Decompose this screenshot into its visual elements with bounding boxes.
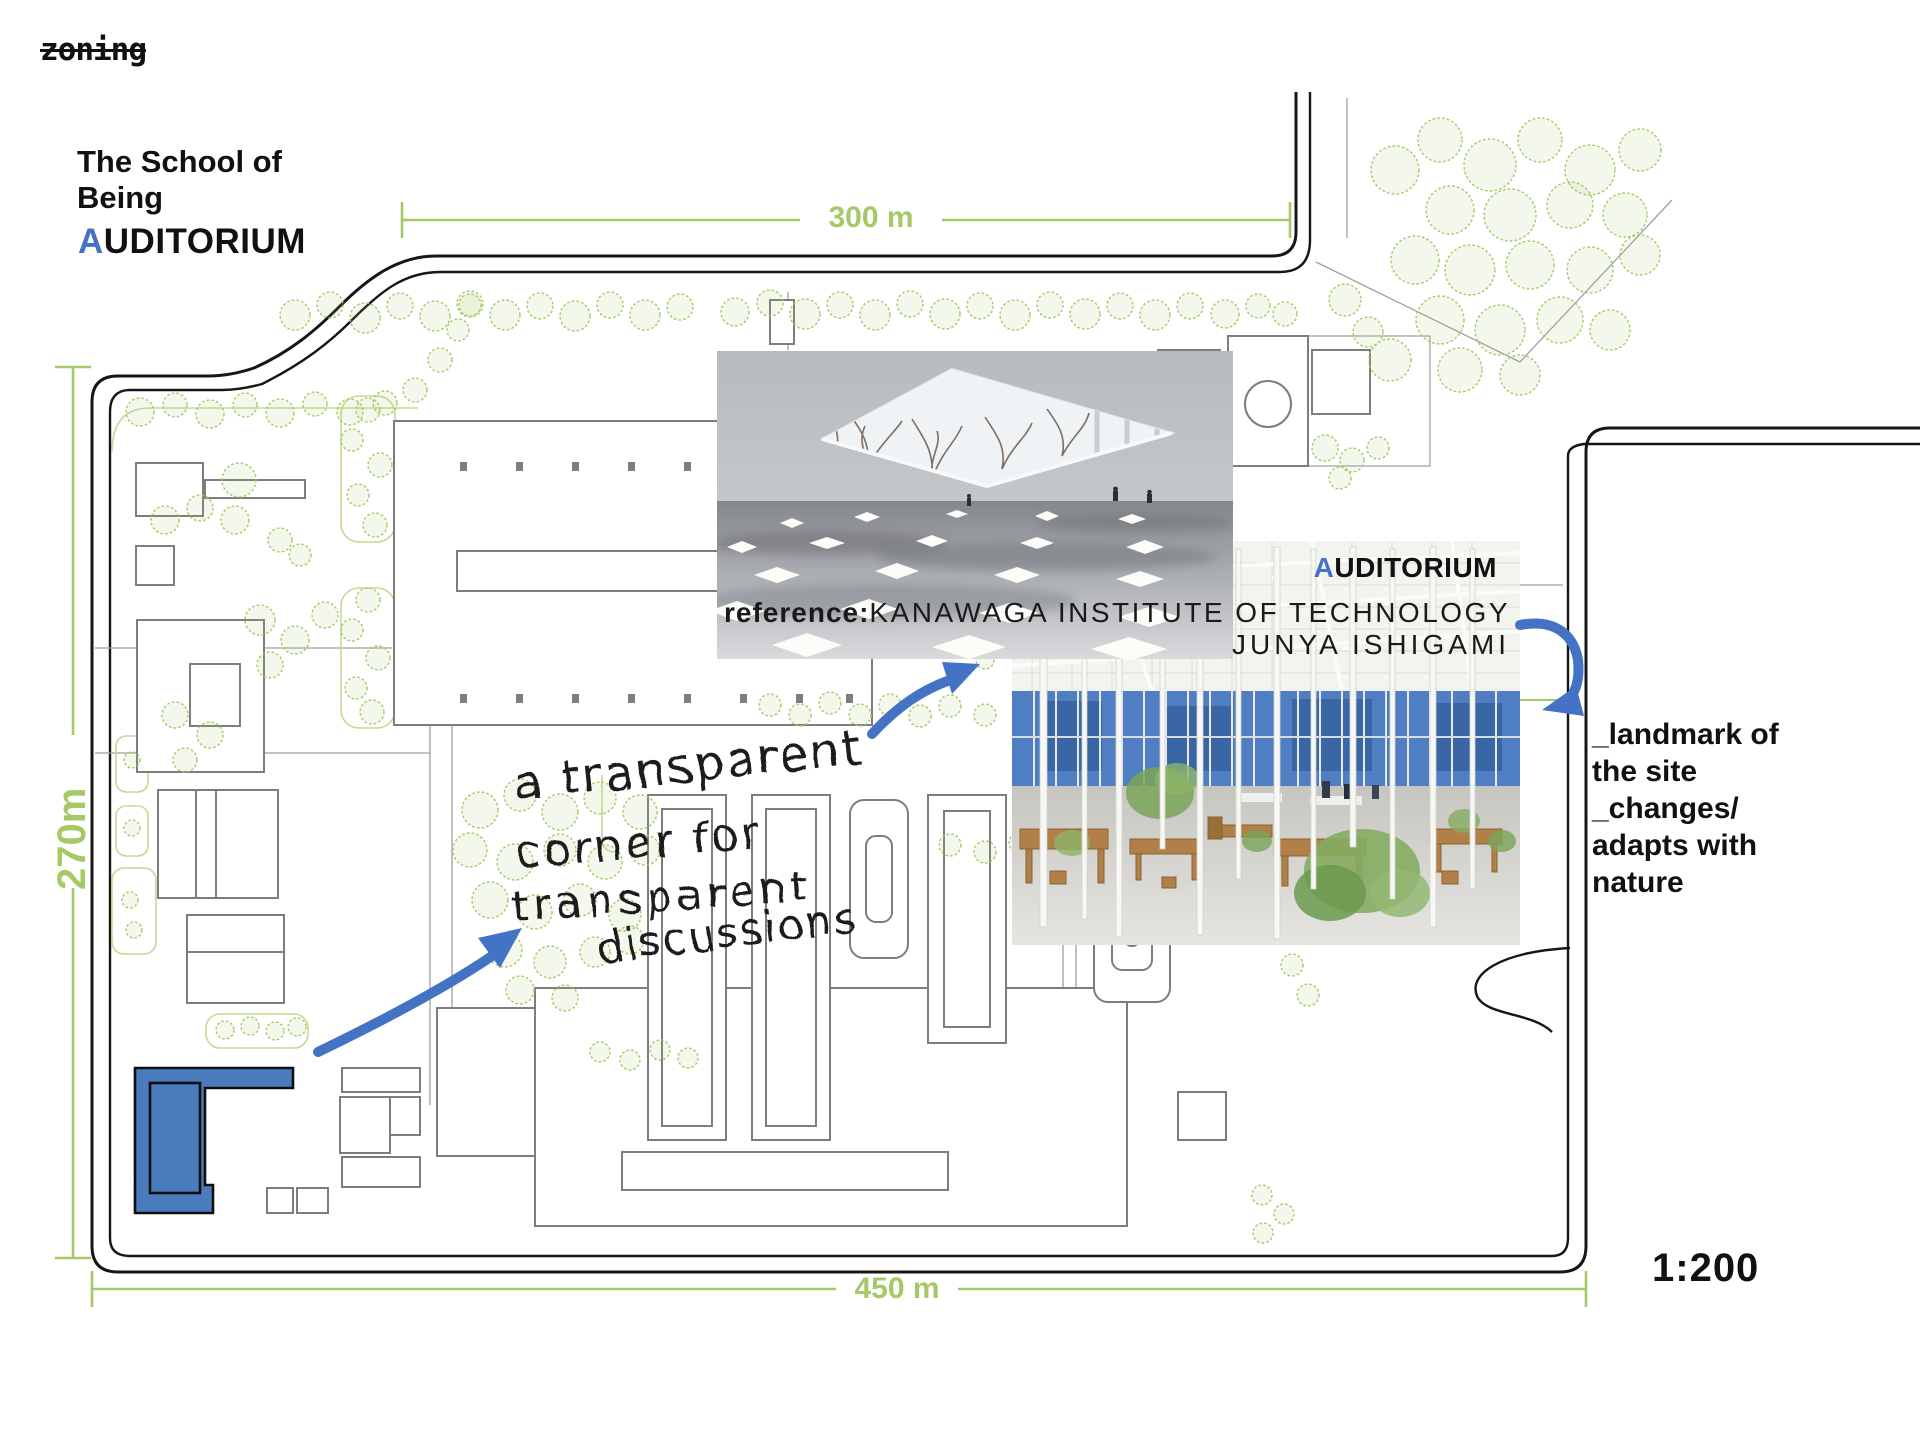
room-title-initial: A [78, 222, 104, 261]
reference-caption-name: KANAWAGA INSTITUTE OF TECHNOLOGY [869, 597, 1510, 628]
landmark-note-line: adapts with [1592, 827, 1779, 864]
landmark-note-line: nature [1592, 864, 1779, 901]
reference-room-rest: UDITORIUM [1334, 552, 1497, 583]
project-title: The School of Being [77, 144, 282, 216]
reference-caption-prefix: reference: [724, 597, 869, 628]
architect-caption: JUNYA ISHIGAMI [700, 629, 1510, 661]
scale-label: 1:200 [1652, 1246, 1759, 1291]
dimension-bottom-label: 450 m [836, 1272, 958, 1306]
landmark-note: _landmark of the site _changes/ adapts w… [1592, 716, 1779, 901]
room-title: AUDITORIUM [78, 222, 306, 262]
project-title-line1: The School of [77, 144, 282, 180]
landmark-note-line: _changes/ [1592, 790, 1779, 827]
zoning-slide: zoning The School of Being AUDITORIUM 30… [0, 0, 1920, 1437]
landmark-note-line: _landmark of [1592, 716, 1779, 753]
project-title-line2: Being [77, 180, 282, 216]
crossed-label: zoning [40, 32, 146, 68]
reference-caption: reference:KANAWAGA INSTITUTE OF TECHNOLO… [700, 597, 1510, 629]
reference-room-initial: A [1314, 552, 1335, 583]
landmark-note-line: the site [1592, 753, 1779, 790]
reference-room-label: AUDITORIUM [1180, 552, 1497, 584]
room-title-rest: UDITORIUM [104, 222, 306, 261]
dimension-left-label: 270m [50, 788, 95, 890]
dimension-top-label: 300 m [800, 201, 942, 235]
